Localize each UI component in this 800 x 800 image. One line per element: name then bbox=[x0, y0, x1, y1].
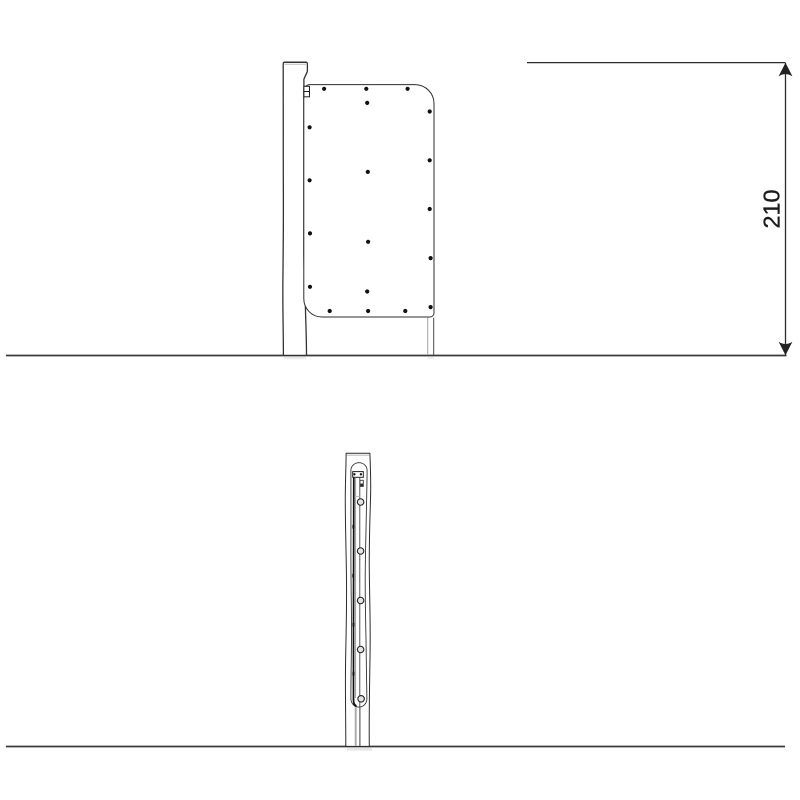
svg-text:210: 210 bbox=[759, 189, 785, 228]
